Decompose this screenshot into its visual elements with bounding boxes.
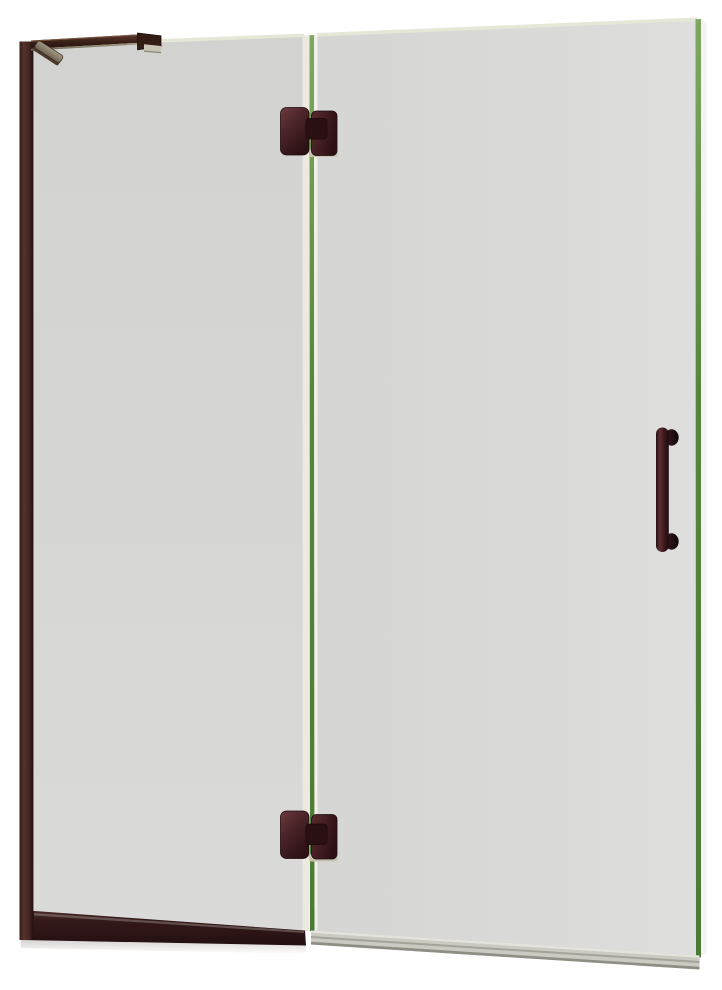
door-glass-face xyxy=(317,19,701,958)
shower-door-product-photo xyxy=(0,0,722,990)
top-hinge-left-leaf xyxy=(281,108,310,156)
door-glass-right-reflection xyxy=(701,19,707,956)
scene-canvas xyxy=(0,0,722,990)
top-hinge-pivot-block xyxy=(306,119,327,140)
fixed-glass-panel xyxy=(34,34,304,932)
door-hinge-side-green-edge xyxy=(310,35,315,931)
fixed-panel-side-edge xyxy=(303,35,310,931)
center-gap xyxy=(303,35,318,932)
top-hinge xyxy=(281,108,338,158)
bottom-hinge-left-leaf xyxy=(281,811,310,859)
wall-profile-bar xyxy=(20,42,34,941)
bottom-hinge-pivot-block xyxy=(306,824,327,845)
handle-bar xyxy=(656,428,669,553)
wall-profile xyxy=(20,42,34,941)
fixed-glass-face xyxy=(34,36,304,932)
door-hinge-side-highlight xyxy=(314,35,318,932)
bottom-hinge xyxy=(281,811,338,862)
door-glass-right-edge xyxy=(696,19,702,958)
door-glass-panel xyxy=(317,18,707,958)
